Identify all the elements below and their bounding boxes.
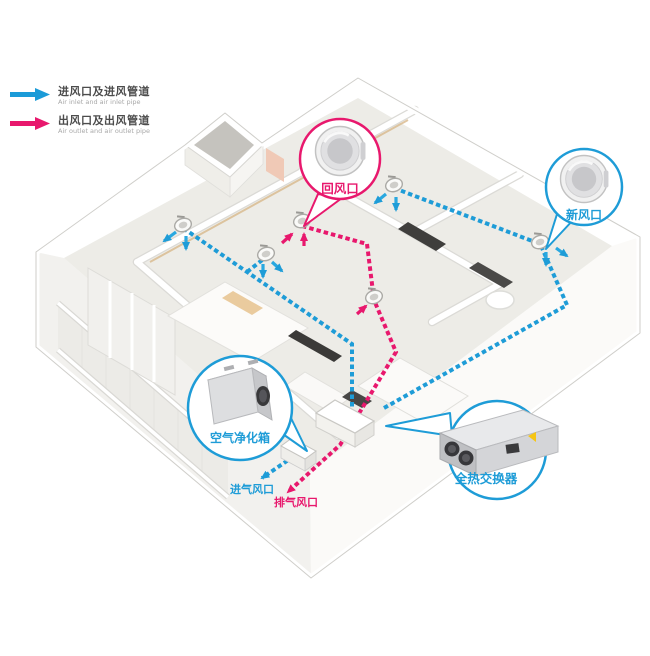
exhaust-arrow-icon — [10, 117, 50, 130]
legend-air-outlet-zh: 出风口及出风管道 — [58, 115, 150, 127]
ventilation-diagram: 进气风口 排气风口 回风口 新风口 — [0, 0, 650, 656]
heat-exchanger-label: 全热交换器 — [454, 471, 518, 486]
legend-item-air-outlet: 出风口及出风管道 Air outlet and air outlet pipe — [10, 115, 150, 135]
bathtub — [486, 291, 514, 309]
round-vent-icon — [561, 156, 609, 203]
fresh-air-label: 新风口 — [566, 207, 602, 222]
air-purifier-label: 空气净化箱 — [210, 430, 270, 445]
intake-vent-label: 进气风口 — [230, 482, 274, 496]
legend-air-inlet-en: Air inlet and air inlet pipe — [58, 98, 150, 106]
legend-item-air-inlet: 进风口及进风管道 Air inlet and air inlet pipe — [10, 86, 150, 106]
legend-air-outlet-en: Air outlet and air outlet pipe — [58, 127, 150, 135]
legend-air-inlet-zh: 进风口及进风管道 — [58, 86, 150, 98]
legend: 进风口及进风管道 Air inlet and air inlet pipe 出风… — [10, 86, 150, 135]
supply-arrow-icon — [10, 88, 50, 101]
round-vent-icon — [316, 127, 366, 176]
exhaust-vent-label: 排气风口 — [274, 495, 318, 509]
return-air-label: 回风口 — [321, 181, 359, 196]
